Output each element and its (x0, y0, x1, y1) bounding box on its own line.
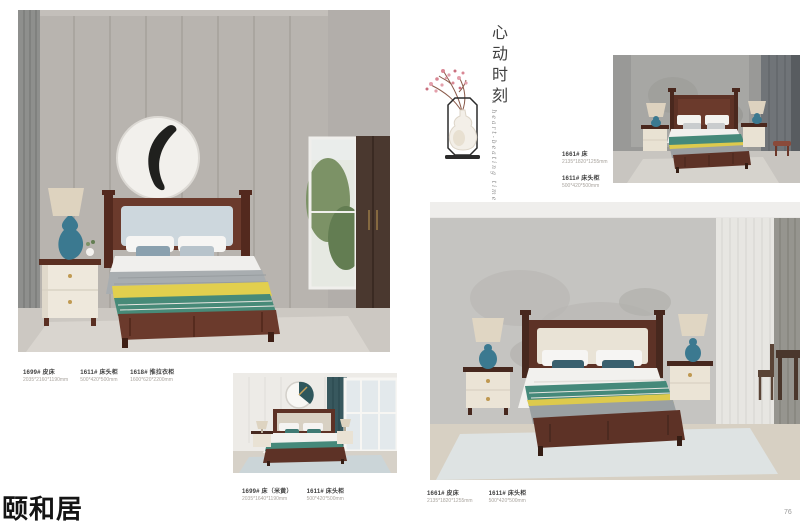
product-entry: 1611# 床头柜 500*420*500mm (489, 488, 527, 504)
product-dims: 500*420*500mm (307, 496, 345, 502)
curtain-left (18, 10, 40, 352)
photo-bedroom-main-right (430, 202, 800, 480)
nightstand-left (251, 431, 273, 447)
product-dims: 2135*1820*1255mm (562, 159, 608, 165)
product-entry: 1699# 皮床 2035*2160*1190mm (23, 367, 68, 383)
product-name: 1611# 床头柜 (307, 486, 345, 495)
nightstand-right (741, 123, 767, 147)
sheer-curtains (716, 218, 800, 430)
product-dims: 500*420*500mm (562, 183, 608, 189)
caption-bottom-middle-photo: 1699# 床（米黄） 2035*1640*1190mm 1611# 床头柜 5… (242, 486, 344, 502)
product-dims: 2135*1820*1255mm (427, 498, 473, 504)
window-garden (306, 138, 364, 288)
plum-branches (426, 69, 468, 112)
product-dims: 500*420*500mm (489, 498, 527, 504)
product-entry: 1611# 床头柜 500*420*500mm (562, 173, 608, 189)
caption-main-right-photo: 1661# 皮床 2135*1820*1255mm 1611# 床头柜 500*… (427, 488, 526, 504)
brand-logo-text: 颐和居 (2, 495, 83, 524)
product-entry: 1661# 床 2135*1820*1255mm (562, 149, 608, 165)
photo-bedroom-left (18, 10, 390, 352)
product-dims: 1600*620*2200mm (130, 377, 174, 383)
vase-illustration (415, 58, 505, 220)
product-entry: 1611# 床头柜 500*420*500mm (80, 367, 118, 383)
product-dims: 2035*2160*1190mm (23, 377, 68, 383)
page-number: 76 (784, 509, 792, 516)
product-entry: 1699# 床（米黄） 2035*1640*1190mm (242, 486, 293, 502)
product-name: 1611# 床头柜 (489, 488, 527, 497)
product-name: 1661# 皮床 (427, 488, 473, 497)
white-vase (449, 110, 476, 150)
caption-top-right-photo: 1661# 床 2135*1820*1255mm 1611# 床头柜 500*4… (562, 149, 608, 189)
nightstand (39, 259, 101, 326)
product-name: 1699# 皮床 (23, 367, 68, 376)
product-name: 1611# 床头柜 (562, 173, 608, 182)
product-entry: 1618# 推拉衣柜 1600*620*2200mm (130, 367, 174, 383)
bed (263, 409, 347, 466)
product-entry: 1611# 床头柜 500*420*500mm (307, 486, 345, 502)
product-entry: 1661# 皮床 2135*1820*1255mm (427, 488, 473, 504)
product-name: 1618# 推拉衣柜 (130, 367, 174, 376)
caption-left-photo: 1699# 皮床 2035*2160*1190mm 1611# 床头柜 500*… (23, 367, 174, 383)
photo-bedroom-bottom-middle (233, 373, 397, 473)
photo-bedroom-top-right (613, 55, 800, 183)
product-name: 1661# 床 (562, 149, 608, 158)
bed (518, 310, 685, 456)
catalog-page: 1699# 皮床 2035*2160*1190mm 1611# 床头柜 500*… (0, 0, 800, 530)
nightstand-right (667, 361, 713, 400)
product-dims: 2035*1640*1190mm (242, 496, 293, 502)
ceiling (430, 202, 800, 218)
nightstand-left (463, 367, 513, 415)
product-name: 1699# 床（米黄） (242, 486, 293, 495)
product-dims: 500*420*500mm (80, 377, 118, 383)
nightstand-left (641, 125, 669, 151)
product-name: 1611# 床头柜 (80, 367, 118, 376)
nightstand-right (337, 431, 353, 444)
round-mirror-art (117, 117, 199, 199)
